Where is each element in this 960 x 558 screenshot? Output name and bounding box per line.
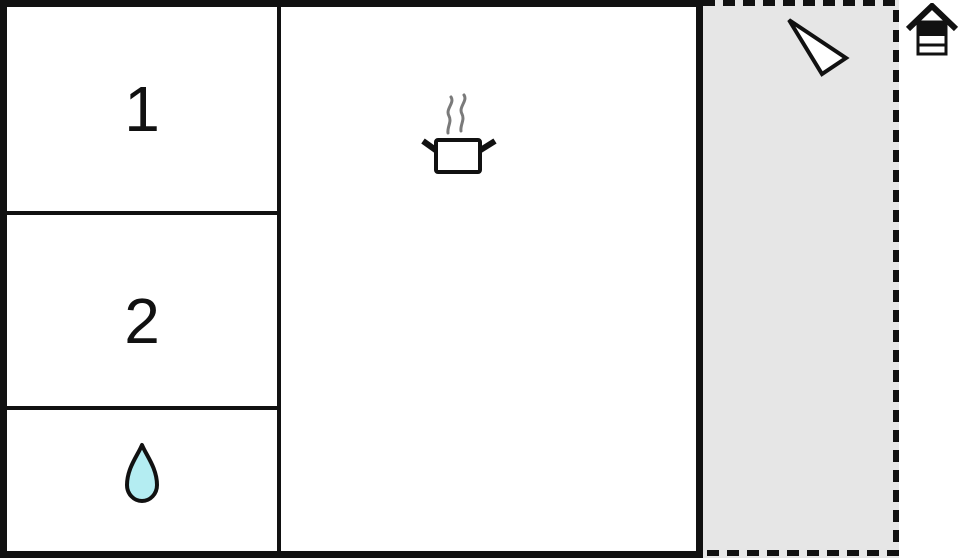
cooking-pot-icon [420,92,498,176]
steam-line-icon [448,97,452,133]
room-bathroom [7,410,277,551]
room-2: 2 [7,215,277,406]
room-2-label: 2 [124,289,160,353]
north-arrow-shape [789,20,846,74]
water-drop-icon [124,442,160,504]
floor-level-icon [905,3,960,58]
floor-plan: 1 2 [0,0,960,558]
room-1: 1 [7,7,277,211]
steam-line-icon [461,95,465,131]
room-1-label: 1 [124,77,160,141]
terrace-area [703,0,899,558]
house-top-floor-highlight [918,22,946,36]
terrace-floor [703,0,899,558]
pot-body [436,140,480,172]
interior-wall-vertical [277,0,281,558]
north-arrow-icon [778,10,856,82]
water-drop-shape [127,445,157,501]
